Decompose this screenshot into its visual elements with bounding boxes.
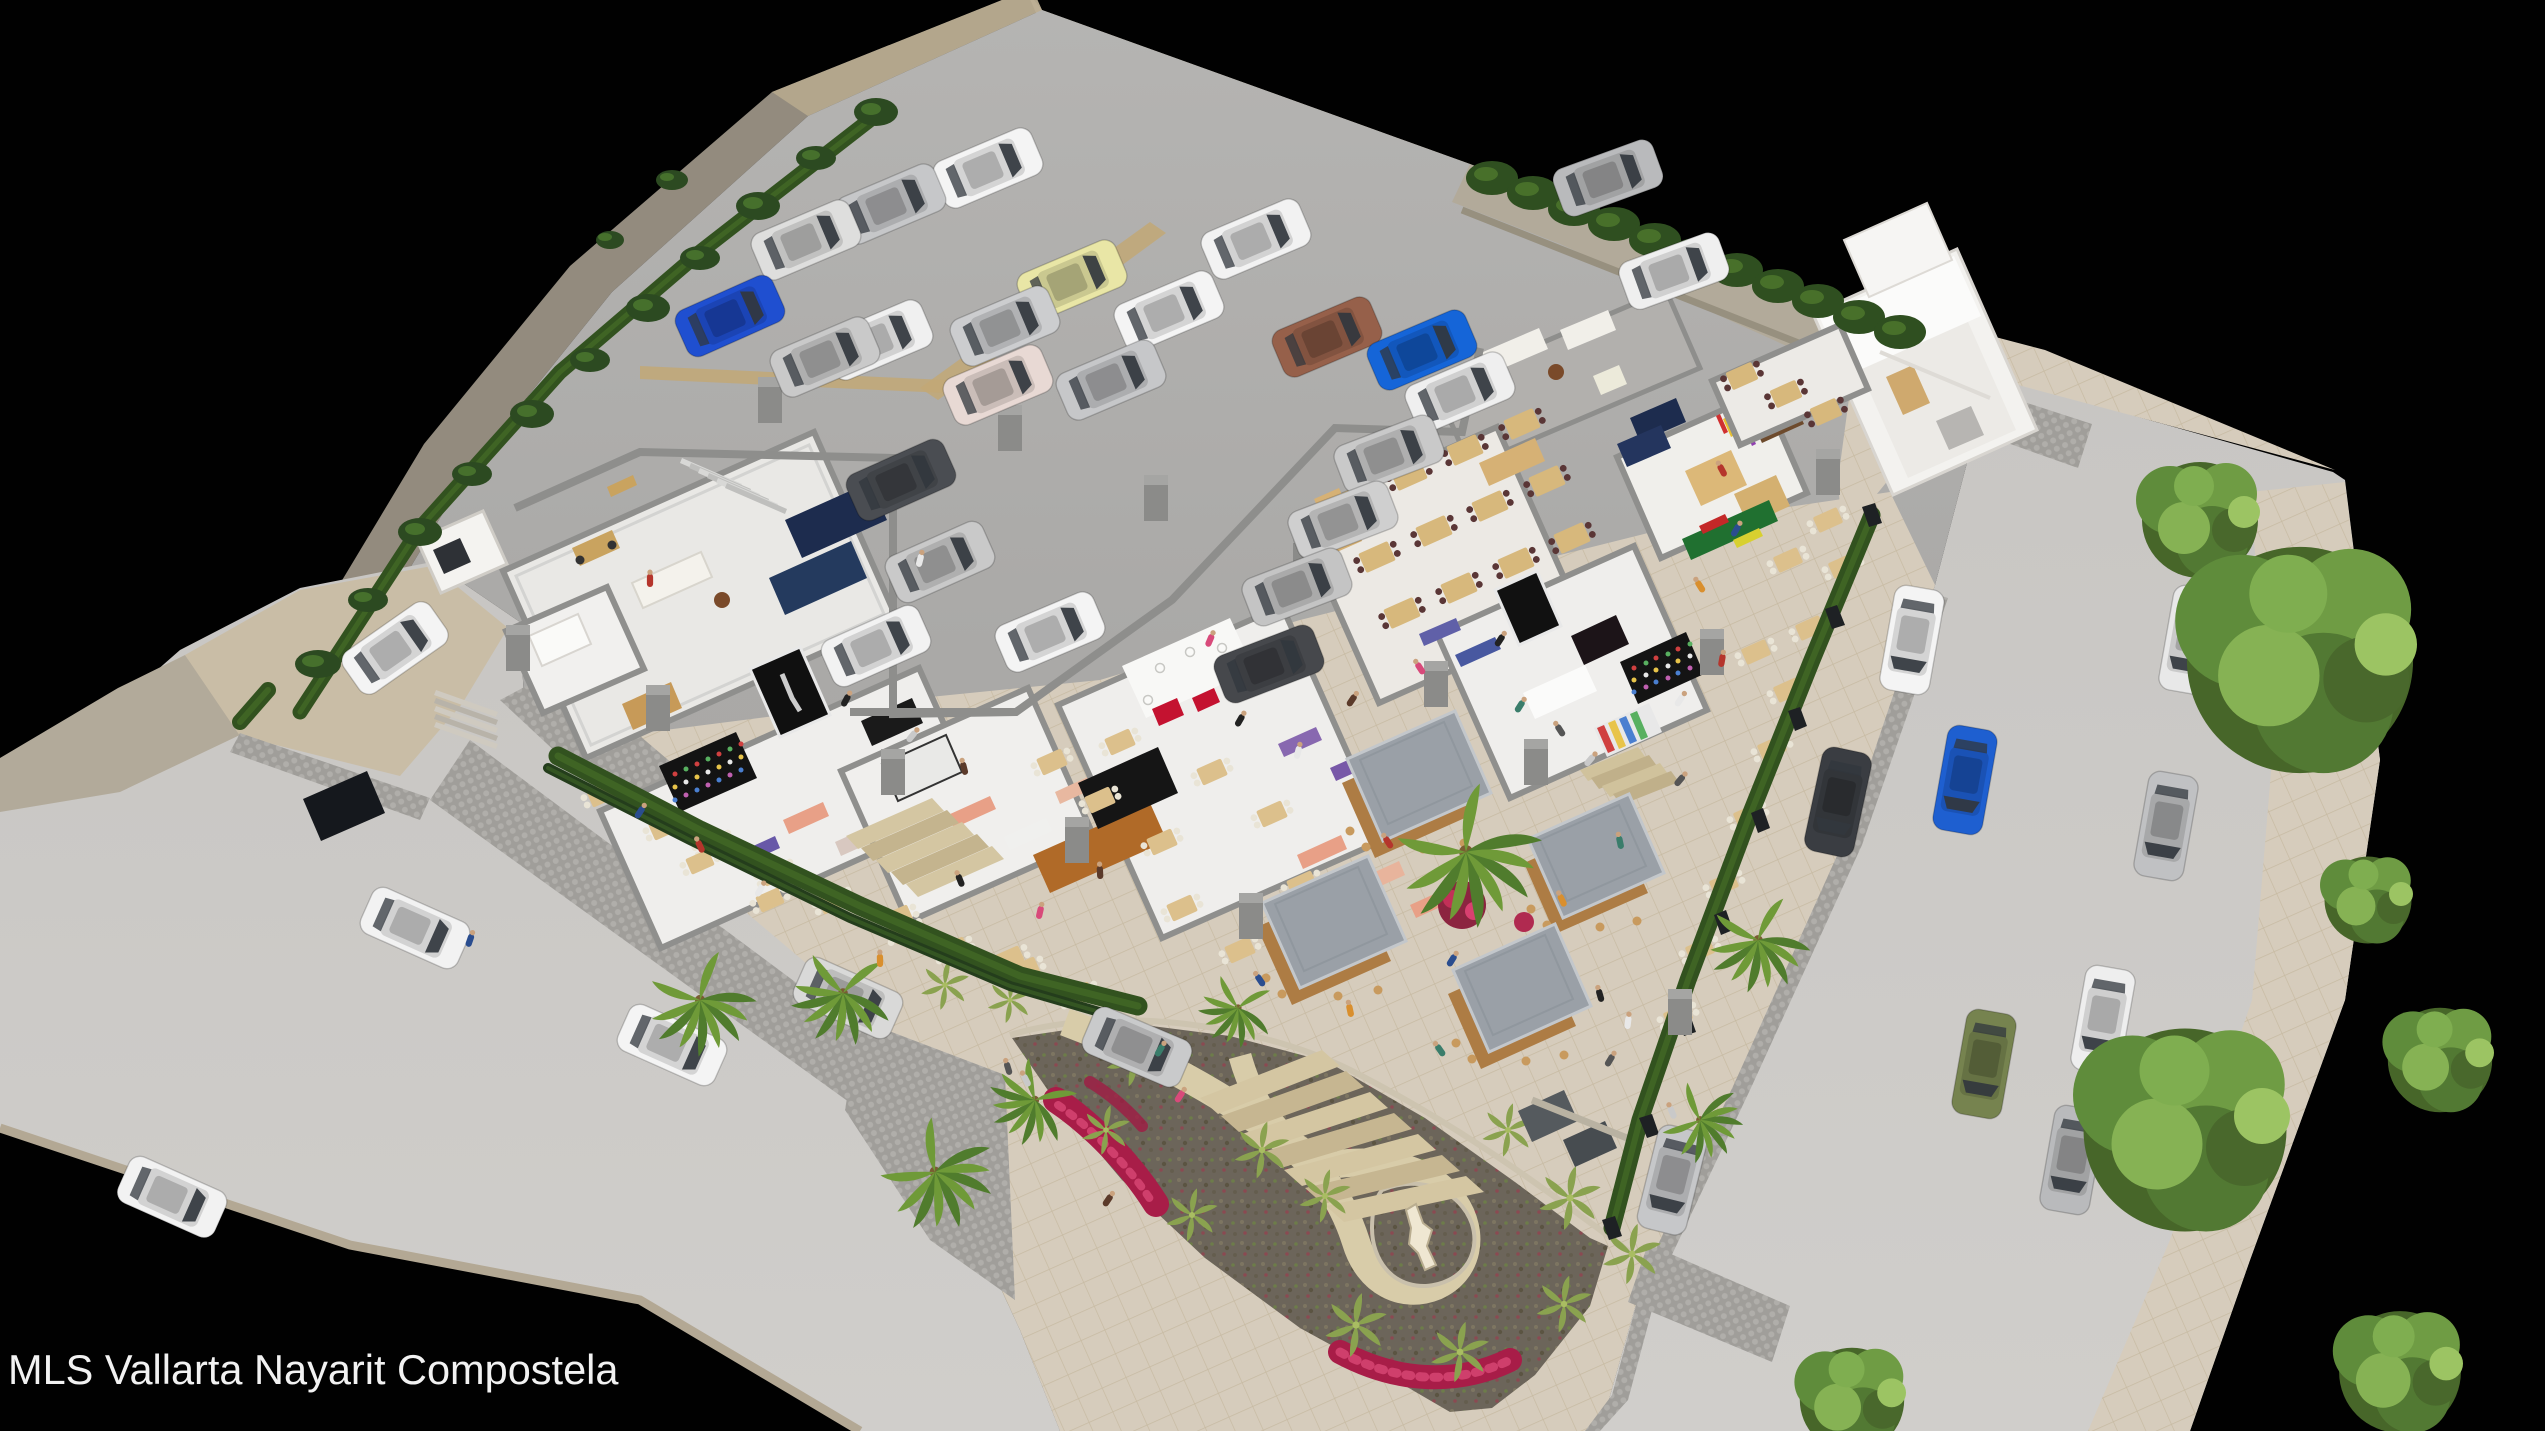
svg-text:MLS Vallarta Nayarit Compostel: MLS Vallarta Nayarit Compostela xyxy=(8,1346,619,1393)
